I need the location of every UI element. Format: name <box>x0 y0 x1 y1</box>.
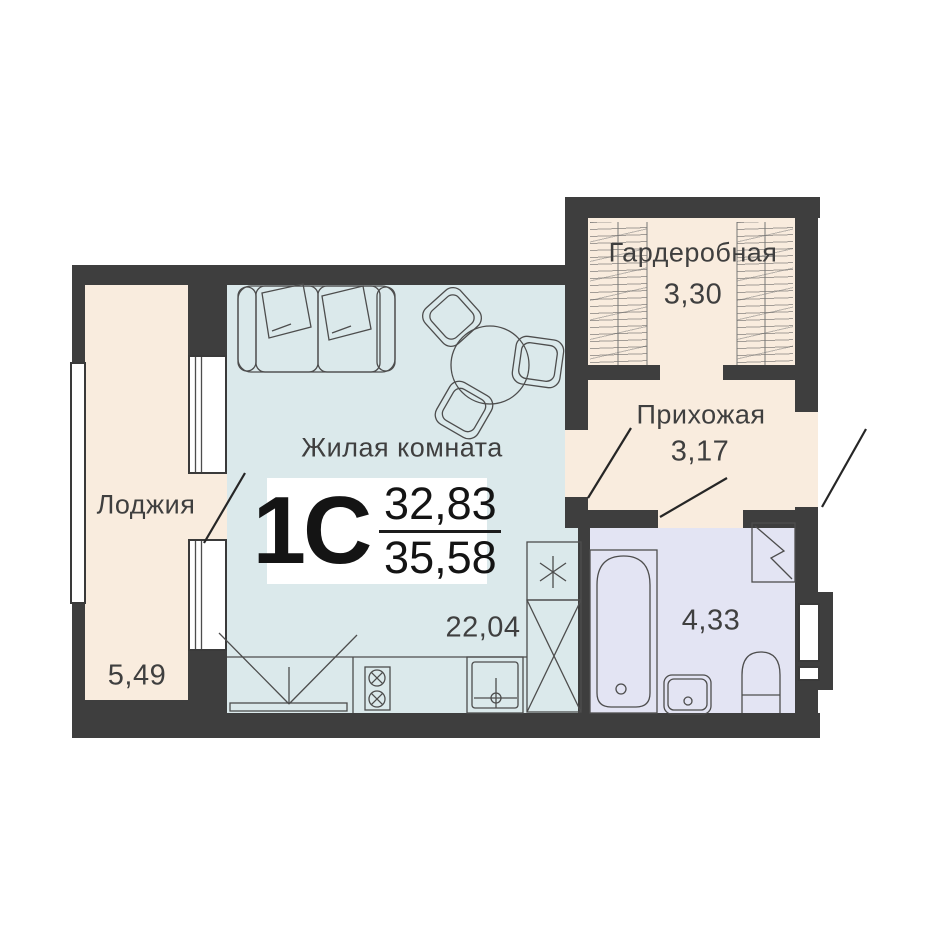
wall <box>72 700 188 738</box>
room-label-wardrobe: Гардеробная <box>609 238 778 269</box>
wall-shaft <box>798 603 820 662</box>
wall <box>188 265 227 355</box>
area-label-bathroom: 4,33 <box>682 605 740 638</box>
window-balcony-top <box>188 355 227 474</box>
wall <box>578 510 658 528</box>
wall <box>578 528 590 713</box>
plan-area-fraction: 32,83 35,58 <box>379 480 501 582</box>
wall <box>588 365 660 380</box>
window-balcony-bottom <box>188 539 227 651</box>
door-opening-bathroom <box>658 510 743 528</box>
living-area-value: 32,83 <box>384 480 497 529</box>
window-loggia-left <box>70 362 86 604</box>
area-label-loggia: 5,49 <box>108 660 166 693</box>
wall <box>795 197 818 412</box>
wall-shaft <box>798 666 820 681</box>
wall <box>72 265 565 285</box>
plan-type-code: 1С <box>253 483 370 579</box>
door-opening-living-hall <box>565 430 588 497</box>
room-label-hallway: Прихожая <box>636 400 765 431</box>
wall <box>565 197 820 218</box>
area-label-hallway: 3,17 <box>671 436 729 469</box>
wall <box>565 197 588 430</box>
total-area-value: 35,58 <box>384 534 497 583</box>
room-label-living: Жилая комната <box>301 433 503 464</box>
wall <box>818 592 833 690</box>
wall <box>188 713 820 738</box>
area-label-living: 22,04 <box>445 612 520 645</box>
area-label-wardrobe: 3,30 <box>664 279 722 312</box>
room-label-loggia: Лоджия <box>97 490 196 521</box>
wall <box>743 510 795 528</box>
plan-type-badge: 1С 32,83 35,58 <box>267 478 487 584</box>
wall <box>723 365 797 380</box>
floor-plan: Гардеробная 3,30 Прихожая 3,17 Жилая ком… <box>0 0 938 939</box>
